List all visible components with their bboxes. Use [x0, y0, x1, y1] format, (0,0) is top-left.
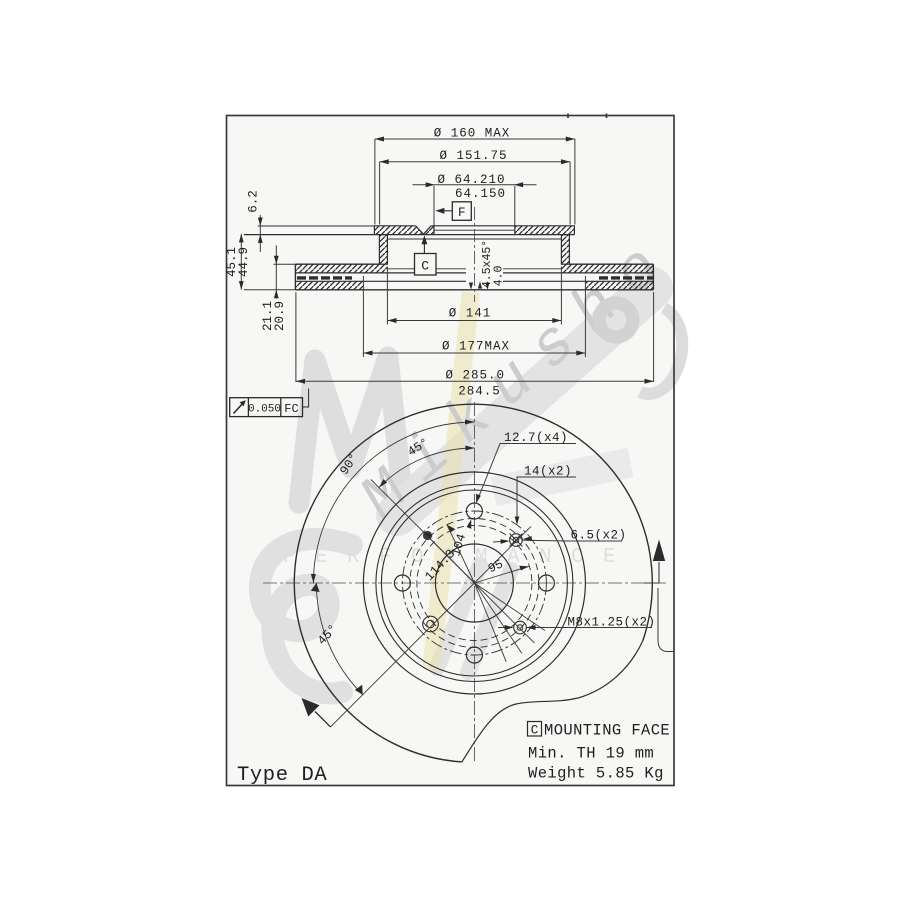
svg-text:N: N: [539, 546, 552, 569]
svg-text:Ø 285.0: Ø 285.0: [446, 369, 506, 383]
svg-text:M: M: [475, 546, 488, 569]
svg-text:FC: FC: [284, 402, 298, 416]
svg-text:44.9: 44.9: [237, 247, 251, 277]
svg-text:Ø 151.75: Ø 151.75: [439, 149, 507, 163]
svg-text:F: F: [458, 206, 466, 220]
svg-text:Type DA: Type DA: [237, 764, 327, 787]
svg-text:64.150: 64.150: [455, 187, 506, 201]
svg-text:Min. TH 19 mm: Min. TH 19 mm: [528, 745, 654, 763]
svg-text:Weight 5.85 Kg: Weight 5.85 Kg: [528, 765, 664, 783]
svg-text:O: O: [411, 546, 424, 569]
svg-text:0.050: 0.050: [248, 404, 281, 416]
svg-text:20.9: 20.9: [273, 301, 287, 331]
svg-text:C: C: [421, 259, 429, 274]
svg-text:MOUNTING FACE: MOUNTING FACE: [544, 722, 670, 740]
svg-text:14(x2): 14(x2): [524, 465, 572, 479]
svg-text:Ø 141: Ø 141: [449, 307, 492, 321]
svg-text:4.0: 4.0: [493, 266, 506, 287]
svg-text:284.5: 284.5: [458, 384, 501, 398]
svg-text:Ø 160 MAX: Ø 160 MAX: [434, 126, 511, 140]
svg-text:Ø 64.210: Ø 64.210: [437, 173, 505, 187]
svg-text:6.5(x2): 6.5(x2): [571, 529, 627, 543]
svg-text:E: E: [603, 546, 616, 569]
svg-text:R: R: [347, 546, 360, 569]
svg-text:12.7(x4): 12.7(x4): [504, 431, 568, 445]
svg-text:P: P: [283, 546, 296, 569]
svg-text:Ø 177MAX: Ø 177MAX: [442, 339, 510, 353]
svg-text:C: C: [571, 546, 584, 569]
svg-text:C: C: [531, 724, 539, 738]
svg-text:6.2: 6.2: [247, 190, 261, 213]
